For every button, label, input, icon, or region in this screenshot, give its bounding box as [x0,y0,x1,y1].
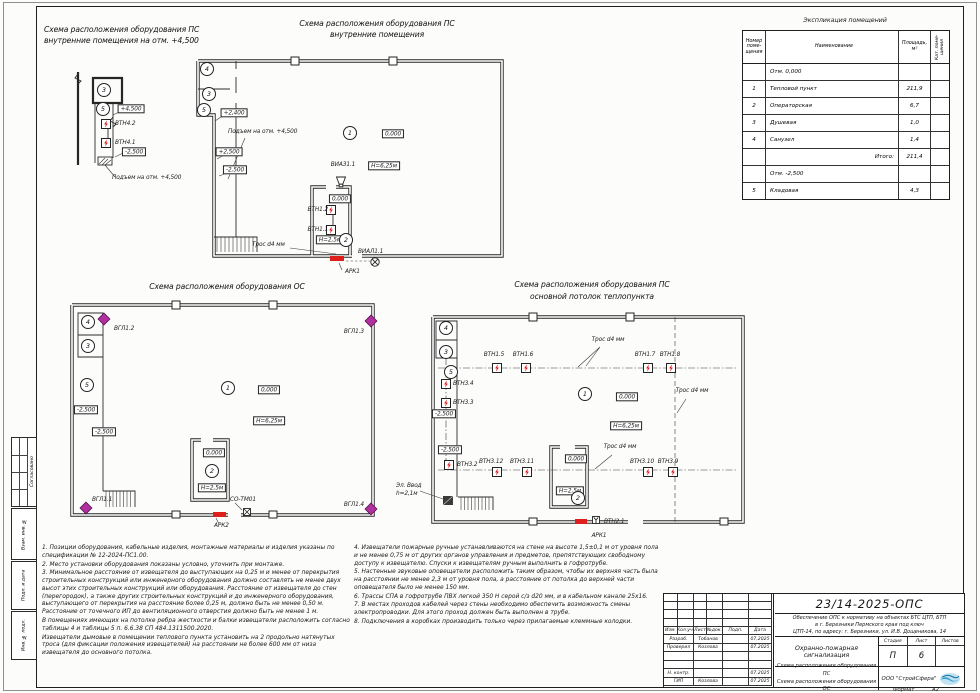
trose-label: Трос d4 мм [252,242,285,248]
height-box: Н=6,25м [253,416,285,425]
room-explication-table: Номер поме- щения Наименование Площадь, … [742,30,950,200]
name-razrab: Тобанов [694,635,723,644]
table-row: Отм. -2,500 [743,166,949,183]
col-number: Номер поме- щения [743,31,766,63]
elevation-box: 0,000 [258,385,280,394]
strobe-lamp-icon [371,258,379,266]
elevation-box: +2,500 [216,147,243,156]
tag-vtn3-11: ВТН3.11 [510,459,534,465]
col-data: Дата [749,627,772,636]
note-3a: В помещениях имеющих на потолке ребра же… [42,618,350,634]
note-3: 3. Минимальное расстояние от извещателя … [42,570,350,617]
title-block-right: 23/14-2025-ОПС Обеспечение ОПС к нормати… [775,594,964,687]
cell-num: 5 [743,183,766,199]
note-5: 5. Настенные звуковые оповещатели распол… [354,569,662,592]
room-number-5: 5 [96,102,110,116]
col-list: Лист [694,627,707,636]
security-detector-icon [80,502,92,514]
elevation-box: +4,500 [118,104,145,113]
tag-viaz1-1: ВИАЗ1.1 [331,162,356,168]
table-row: 5Кладовая4,3 [743,183,949,199]
col-koluch: Кол.уч. [678,627,694,636]
role-proveril: Проверил [664,644,694,653]
note-4: 4. Извещатели пожарные ручные устанавлив… [354,545,662,568]
name-proveril: Козлова [694,644,723,653]
role-nkontr: Н. контр. [664,669,694,678]
manual-call-point-icon [593,517,600,524]
stage-block: Стадия Лист Листов П 6 [879,637,964,666]
heat-detector-icon [644,468,653,477]
elevation-box: -2,500 [92,427,116,436]
tag-vtn2-1: ВТН2.1 [604,519,625,525]
sheets-total [936,646,964,666]
tag-vtn3-9: ВТН3.9 [658,459,679,465]
row-group-label: Отм. 0,000 [766,64,899,80]
notes-left-column: 1. Позиции оборудования, кабельные издел… [42,545,350,659]
elevation-box: -2,500 [438,445,462,454]
tag-vtn4-1: ВТН4.1 [115,140,136,146]
stage-value: П [879,646,908,666]
heat-detector-icon [523,468,532,477]
project-description-line1: Обеспечение ОПС к нормативу на объектах … [793,615,947,622]
room-number-3: 3 [202,87,216,101]
date-gip: 07.2025 [749,678,772,687]
room-number-3: 3 [439,345,453,359]
heat-detector-icon [493,468,502,477]
note-2: 2. Место установки оборудования показаны… [42,562,350,570]
climb-note: Подъем на отм. +4,500 [228,129,297,135]
sheet-number: 6 [908,646,937,666]
date-proveril: 07.2025 [749,644,772,653]
room-number-2: 2 [205,464,219,478]
tag-vgl1-4: ВГЛ1.4 [344,502,364,508]
col-category: Кат. поме- щения [931,31,951,63]
climb-note: Подъем на отм. +4,500 [112,175,181,181]
cell-name: Душевая [766,115,899,131]
junction-box-ark2 [213,512,226,517]
date-razrab: 07.2025 [749,635,772,644]
margin-label-inv: Инв. № подл. [12,612,36,659]
elevation-box: +2,400 [221,108,248,117]
document-number: 23/14-2025-ОПС [775,594,964,614]
heat-detector-icon [442,380,451,389]
elevation-box: 0,000 [329,194,351,203]
table-row: 2Операторская6,7 [743,98,949,115]
col-ndok: №док. [707,627,723,636]
tag-vtn1-6: ВТН1.6 [513,352,534,358]
junction-box-ark1 [330,256,344,261]
margin-label-podp: Подп. и дата [12,562,36,609]
room-number-3: 3 [81,339,95,353]
company-cell: ООО "СтройСфера" [879,667,964,690]
margin-cell-vzam: Взам. инв. № [11,508,37,560]
heat-detector-icon [667,364,676,373]
cell-name: Операторская [766,98,899,114]
room-number-4: 4 [200,62,214,76]
tag-vtn3-10: ВТН3.10 [630,459,654,465]
plan-c-title: Схема расположения оборудования ОС [149,283,305,291]
table-row: 4Санузел1,4 [743,132,949,149]
height-box: Н=6,25м [368,161,400,170]
role-gip: ГИП [664,678,694,687]
company-logo [939,672,961,686]
cell-num: 3 [743,115,766,131]
table-row: 1Тепловой пункт211,9 [743,81,949,98]
cell-name: Санузел [766,132,899,148]
tag-vtn3-12: ВТН3.12 [479,459,503,465]
stage-header: Стадия [879,637,908,645]
sign-gip [723,678,749,687]
total-label: Итого: [766,149,899,165]
company-name: ООО "СтройСфера" [882,676,937,682]
plan-d-title-line1: Схема расположения оборудования ПС [514,281,669,289]
elevation-box: -2,500 [432,409,456,418]
project-description-line3: ЦТП-14, по адресу: г. Березники, ул. И.В… [793,629,946,636]
cell-name: Кладовая [766,183,899,199]
heat-detector-icon [522,364,531,373]
title-block-signatures: Изм. Кол.уч. Лист №док. Подп. Дата Разра… [664,594,774,687]
note-1: 1. Позиции оборудования, кабельные издел… [42,545,350,561]
room-number-1: 1 [221,381,235,395]
tag-vtn3-3: ВТН3.3 [453,400,474,406]
plan-b-title-line1: Схема расположения оборудования ПС [299,20,454,28]
room-number-2: 2 [339,233,353,247]
tag-vgl1-2: ВГЛ1.2 [114,326,134,332]
margin-label-soglasovano: Согласовано [30,438,35,506]
drawing-sheet: Схема расположения оборудования ПС внутр… [0,0,980,693]
tag-vgl1-3: ВГЛ1.3 [344,329,364,335]
project-description-line2: в г. Березники Пермского края под ключ [815,622,924,629]
system-subject: Охранно-пожарная сигнализация [775,637,879,666]
col-name: Наименование [766,31,899,63]
room-table-title: Экспликация помещений [803,17,887,24]
tag-vgl1-1: ВГЛ1.1 [92,497,112,503]
heat-detector-icon [445,461,454,470]
col-izm: Изм. [664,627,678,636]
tag-vial1-1: ВИАЛ1.1 [358,249,383,255]
heat-detector-icon [102,139,111,148]
tm-reader-icon [244,509,251,516]
date-nkontr: 07.2025 [749,669,772,678]
security-detector-icon [365,315,377,327]
cell-area: 1,4 [899,132,931,148]
format-label: Формат [893,688,914,693]
cell-num: 2 [743,98,766,114]
name-nkontr [694,669,723,678]
plan-a-title-line2: внутренние помещения на отм. +4,500 [44,37,199,45]
table-row: 3Душевая1,0 [743,115,949,132]
tag-vtn3-4: ВТН3.4 [453,381,474,387]
tag-vtn1-5: ВТН1.5 [484,352,505,358]
note-3b: Извещатели дымовые в помещении теплового… [42,635,350,658]
sheet-titles: Схема расположения оборудования ПС Схема… [775,667,879,690]
tag-vtn1-7: ВТН1.7 [635,352,656,358]
heat-detector-icon [644,364,653,373]
room-number-4: 4 [439,321,453,335]
col-category-label: Кат. поме- щения [936,31,946,63]
height-box: Н=2,5м [198,483,226,492]
room-number-3: 3 [97,83,111,97]
tag-vtn1-8: ВТН1.8 [660,352,681,358]
elevation-box: -2,500 [223,165,247,174]
plan-b-title-line2: внутренние помещения [330,31,424,39]
room-number-4: 4 [81,315,95,329]
cell-area: 6,7 [899,98,931,114]
margin-label-vzam: Взам. инв. № [12,509,36,559]
junction-box-ark1 [575,519,587,524]
cell-area: 4,3 [899,183,931,199]
note-7: 7. В местах проходов кабелей через стены… [354,602,662,618]
sheet-title-1: Схема расположения оборудования ПС [775,663,878,679]
room-number-5: 5 [197,103,211,117]
sheet-title-2: Схема расположения оборудования ОС [775,679,878,693]
room-number-1: 1 [343,126,357,140]
cell-num: 4 [743,132,766,148]
tag-vtn1-1: ВТН1.1 [308,227,329,233]
row-group-label: Отм. -2,500 [766,166,899,182]
sign-razrab [723,635,749,644]
tag-ark1: АРК1 [345,269,360,275]
sheets-header: Листов [936,637,964,645]
margin-cell-podp: Подп. и дата [11,561,37,610]
col-podp: Подп. [723,627,749,636]
tag-ark2: АРК2 [214,523,229,529]
heat-detector-icon [669,468,678,477]
note-6: 6. Трассы СПА в гофротрубе ПВХ легкой 35… [354,594,662,602]
elevation-box: 0,000 [565,454,587,463]
security-detector-icon [365,503,377,515]
table-row: Отм. 0,000 [743,64,949,81]
cell-area: 211,9 [899,81,931,97]
security-detector-icon [98,313,110,325]
role-razrab: Разраб. [664,635,694,644]
heat-detector-icon [493,364,502,373]
sheet-header: Лист [908,637,937,645]
title-block: Изм. Кол.уч. Лист №док. Подп. Дата Разра… [663,593,965,688]
cell-name: Тепловой пункт [766,81,899,97]
room-number-5: 5 [80,378,94,392]
trose-label: Трос d4 мм [592,337,625,343]
plan-a-title-line1: Схема расположения оборудования ПС [44,26,199,34]
trose-label: Трос d4 мм [604,444,637,450]
col-area: Площадь, м² [899,31,931,63]
table-row-total: Итого:211,4 [743,149,949,166]
room-table-header: Номер поме- щения Наименование Площадь, … [743,31,949,64]
project-description: Обеспечение ОПС к нормативу на объектах … [775,614,964,637]
tag-vtn1-2: ВТН1.2 [308,207,329,213]
elevation-box: 0,000 [203,448,225,457]
note-8: 8. Подключения в коробках производить то… [354,619,662,627]
room-number-1: 1 [578,387,592,401]
elevation-box: -2,500 [122,147,146,156]
name-gip: Козлова [694,678,723,687]
heat-detector-icon [102,120,111,129]
plan-d-title-line2: основной потолок теплопункта [530,293,654,301]
plan-ps-ceiling-linework [390,300,750,540]
electrical-entry-label-line2: h=2,1м [396,491,418,497]
cell-area: 1,0 [899,115,931,131]
elevation-box: 0,000 [616,392,638,401]
tag-so-tm01: СО-ТМ01 [230,497,256,503]
heat-detector-icon [442,399,451,408]
trose-label: Трос d4 мм [676,388,709,394]
height-box: Н=6,25м [610,421,642,430]
notes-right-column: 4. Извещатели пожарные ручные устанавлив… [354,545,662,628]
plan-ps-elev4500-linework [55,65,205,205]
tag-vtn4-2: ВТН4.2 [115,121,136,127]
tag-vtn3-2: ВТН3.2 [457,462,478,468]
plan-os-linework [65,300,385,530]
margin-cell-soglasovano: Согласовано [11,437,37,507]
room-number-5: 5 [444,365,458,379]
total-area: 211,4 [899,149,931,165]
electrical-entry-label-line1: Эл. Ввод [396,483,422,489]
elevation-box: 0,000 [382,129,404,138]
sign-nkontr [723,669,749,678]
format-value: А2 [932,688,939,693]
sign-proveril [723,644,749,653]
margin-cell-inv: Инв. № подл. [11,611,37,660]
tag-ark1: АРК1 [592,533,607,539]
elevation-box: -2,500 [74,405,98,414]
room-number-2: 2 [571,491,585,505]
cell-num: 1 [743,81,766,97]
